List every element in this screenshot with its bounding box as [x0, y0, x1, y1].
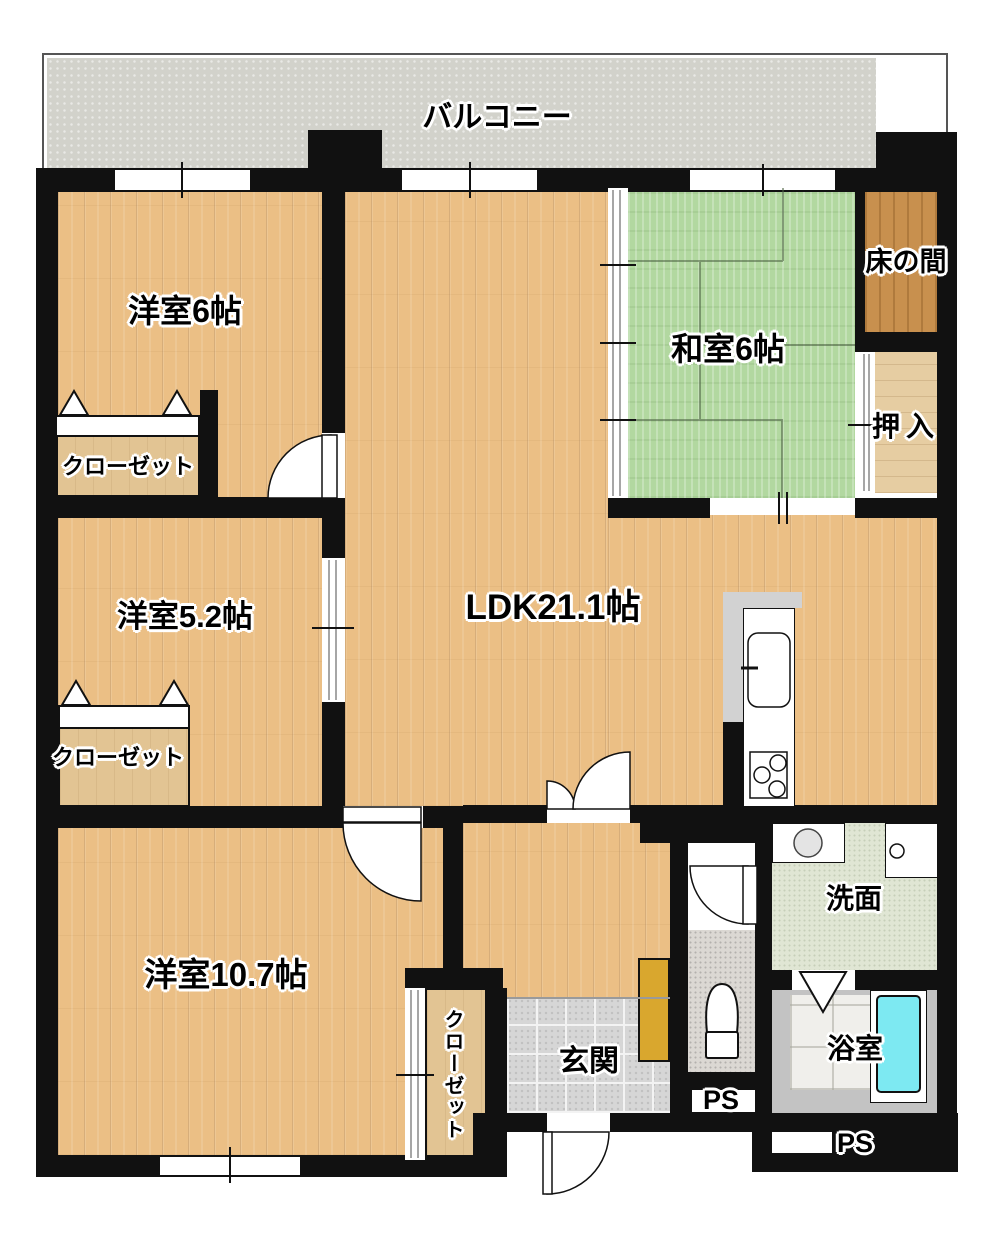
- wall-balcony-bump: [308, 130, 382, 170]
- ldk-floor-left: [345, 190, 608, 806]
- wall-ldk-bottom-a: [463, 805, 547, 823]
- ldk-label: LDK21.1帖: [428, 590, 678, 627]
- closet3-label: クローゼット: [441, 995, 462, 1155]
- opening-entrance-door: [547, 1113, 610, 1132]
- wall-toilet-left: [670, 843, 688, 1072]
- japanese6-label: 和室6帖: [628, 333, 828, 367]
- western107-label: 洋室10.7帖: [101, 958, 351, 993]
- wall-closet3-right: [487, 988, 507, 1177]
- closet2-label: クローゼット: [28, 746, 208, 769]
- washing-machine: [772, 823, 845, 863]
- wall-tokonoma-divider: [855, 332, 937, 352]
- slider-closet3: [405, 988, 425, 1160]
- wall-washroom-top: [755, 805, 938, 823]
- ps1-label: PS: [691, 1086, 751, 1114]
- western52-label: 洋室5.2帖: [75, 601, 295, 634]
- bathroom-label: 浴室: [795, 1034, 915, 1063]
- tokonoma-label: 床の間: [846, 248, 966, 276]
- wall-h-806-left: [36, 806, 343, 828]
- opening-western107-door: [343, 806, 423, 828]
- wall-v-443: [443, 823, 463, 988]
- western6-label: 洋室6帖: [85, 295, 285, 329]
- ps2-label: PS: [825, 1129, 885, 1157]
- door-entrance: [543, 1132, 609, 1194]
- wall-kitchen-stub: [723, 722, 743, 807]
- window-japanese-balcony: [690, 170, 835, 190]
- wall-toilet-top: [640, 823, 772, 843]
- opening-bath-door: [792, 970, 855, 990]
- opening-western6-door: [322, 433, 345, 498]
- kitchen-counter: [743, 608, 795, 807]
- washroom-label: 洗面: [794, 884, 914, 913]
- ps2-duct: [772, 1132, 832, 1153]
- slider-japanese-bottom: [710, 500, 855, 515]
- slider-western52: [322, 558, 345, 702]
- wall-closet3-top: [405, 968, 503, 988]
- wall-left: [36, 168, 58, 1177]
- wall-right: [937, 132, 957, 1172]
- genkan-label: 玄関: [529, 1046, 649, 1078]
- wall-washroom-left: [755, 823, 772, 1132]
- oshiire-label: 押入: [856, 412, 956, 441]
- toilet-floor: [688, 930, 755, 1072]
- wall-ldk-bottom-b: [630, 805, 772, 823]
- wall-washitsu-bottom-b: [855, 498, 937, 518]
- closet-1-track: [55, 415, 200, 437]
- opening-toilet-door: [688, 843, 755, 930]
- opening-ldk-door: [547, 805, 630, 823]
- closet-2-track: [58, 705, 190, 729]
- kitchen-counter-side: [723, 608, 743, 722]
- window-western6: [115, 170, 250, 190]
- window-western107: [160, 1157, 300, 1175]
- kitchen-counter-back: [723, 592, 802, 608]
- balcony-label: バルコニー: [397, 102, 597, 134]
- wall-divider-a: [322, 190, 345, 435]
- fusuma-japanese-left: [608, 188, 628, 498]
- wall-washitsu-bottom-a: [608, 498, 710, 518]
- window-ldk-balcony: [402, 170, 537, 190]
- floor-plan: バルコニー 洋室6帖 和室6帖 床の間 押入 クローゼット 洋室5.2帖 クロー…: [0, 0, 1000, 1252]
- washroom-sink-counter: [885, 823, 938, 878]
- closet1-label: クローゼット: [38, 455, 218, 478]
- wall-h-497: [36, 497, 345, 518]
